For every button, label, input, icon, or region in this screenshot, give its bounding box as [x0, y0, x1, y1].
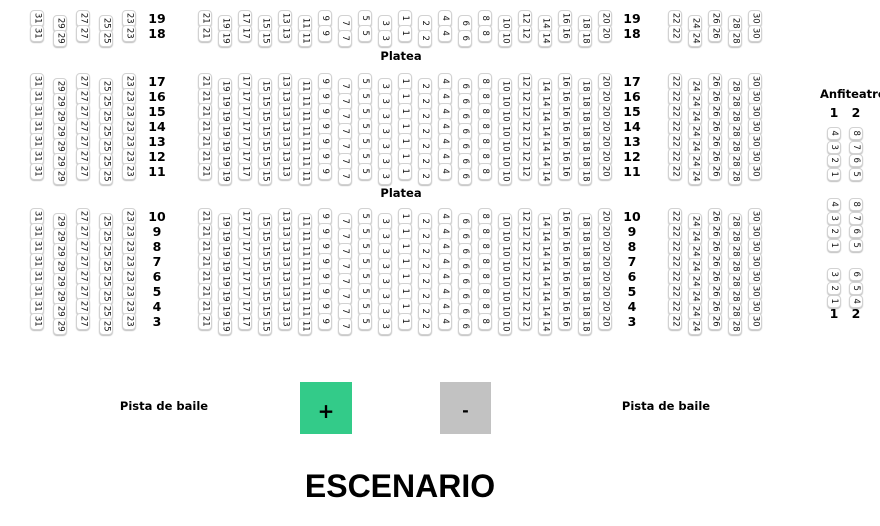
- seat[interactable]: 10: [498, 318, 512, 335]
- seat-number: 14: [541, 141, 550, 152]
- seat[interactable]: 2: [418, 168, 432, 185]
- seat[interactable]: 31: [30, 25, 44, 42]
- seat-number: 11: [301, 18, 310, 29]
- seat-number: 27: [79, 211, 88, 222]
- seat[interactable]: 25: [99, 318, 113, 335]
- seat[interactable]: 6: [849, 268, 863, 281]
- seat-number: 16: [561, 286, 570, 297]
- seat[interactable]: 11: [298, 168, 312, 185]
- seat-number: 13: [281, 151, 290, 162]
- seat[interactable]: 27: [76, 313, 90, 330]
- seat-number: 30: [751, 136, 760, 147]
- seat-number: 30: [751, 13, 760, 24]
- seat[interactable]: 8: [849, 127, 863, 140]
- seat-number: 21: [201, 316, 210, 327]
- seat[interactable]: 6: [849, 225, 863, 238]
- seat-number: 6: [461, 249, 470, 254]
- seat-number: 27: [79, 241, 88, 252]
- seat[interactable]: 12: [518, 25, 532, 42]
- seat[interactable]: 1: [398, 25, 412, 42]
- seat-number: 19: [221, 126, 230, 137]
- seat[interactable]: 10: [498, 168, 512, 185]
- seat-number: 20: [601, 28, 610, 39]
- seat-number: 8: [481, 274, 490, 279]
- seat[interactable]: 31: [30, 163, 44, 180]
- seat-number: 18: [581, 321, 590, 332]
- seat-number: 27: [79, 286, 88, 297]
- seat-number: 14: [541, 276, 550, 287]
- seat-number: 6: [461, 279, 470, 284]
- seat[interactable]: 3: [378, 168, 392, 185]
- seat[interactable]: 6: [849, 154, 863, 167]
- seat-number: 28: [731, 111, 740, 122]
- seat[interactable]: 22: [668, 25, 682, 42]
- seat[interactable]: 21: [198, 25, 212, 42]
- seat[interactable]: 2: [827, 282, 841, 295]
- seat[interactable]: 4: [827, 198, 841, 211]
- seat-number: 6: [852, 272, 861, 277]
- seat-number: 27: [79, 136, 88, 147]
- seat-number: 14: [541, 81, 550, 92]
- seat-number: 11: [301, 126, 310, 137]
- seat-number: 8: [481, 109, 490, 114]
- seat-number: 2: [421, 36, 430, 41]
- seat[interactable]: 7: [338, 168, 352, 185]
- seat-number: 12: [521, 211, 530, 222]
- seat[interactable]: 21: [198, 313, 212, 330]
- seat-number: 23: [125, 286, 134, 297]
- seat[interactable]: 16: [558, 25, 572, 42]
- seat[interactable]: 7: [338, 30, 352, 47]
- seat-number: 20: [601, 301, 610, 312]
- seat-number: 19: [221, 33, 230, 44]
- seat[interactable]: 27: [76, 25, 90, 42]
- seat[interactable]: 5: [849, 239, 863, 252]
- zoom-in-button[interactable]: +: [300, 382, 352, 434]
- seat-number: 22: [671, 166, 680, 177]
- seat[interactable]: 12: [518, 313, 532, 330]
- seat-number: 21: [201, 166, 210, 177]
- seat[interactable]: 4: [438, 25, 452, 42]
- seat-number: 8: [852, 131, 861, 136]
- seat-number: 7: [341, 309, 350, 314]
- seat-number: 10: [501, 33, 510, 44]
- seat-number: 7: [341, 114, 350, 119]
- seat-number: 23: [125, 13, 134, 24]
- seat-number: 12: [521, 91, 530, 102]
- seat[interactable]: 16: [558, 313, 572, 330]
- seat[interactable]: 10: [498, 30, 512, 47]
- seat-number: 19: [221, 96, 230, 107]
- seat-number: 4: [830, 202, 839, 207]
- seat-number: 25: [102, 33, 111, 44]
- seat-number: 18: [581, 156, 590, 167]
- seat[interactable]: 27: [76, 163, 90, 180]
- seat[interactable]: 19: [218, 30, 232, 47]
- seat[interactable]: 3: [827, 141, 841, 154]
- seat-number: 23: [125, 91, 134, 102]
- seat[interactable]: 28: [728, 30, 742, 47]
- seat-number: 6: [852, 158, 861, 163]
- seat[interactable]: 7: [849, 212, 863, 225]
- seat[interactable]: 2: [827, 225, 841, 238]
- seat-number: 6: [852, 229, 861, 234]
- seat[interactable]: 9: [318, 25, 332, 42]
- seat[interactable]: 13: [278, 163, 292, 180]
- seat-number: 10: [501, 276, 510, 287]
- seat-number: 14: [541, 111, 550, 122]
- seat-number: 18: [581, 216, 590, 227]
- seat-number: 20: [601, 13, 610, 24]
- seat[interactable]: 9: [318, 163, 332, 180]
- seat-number: 19: [221, 291, 230, 302]
- seat-number: 13: [281, 121, 290, 132]
- seat-number: 12: [521, 13, 530, 24]
- seat-number: 1: [401, 94, 410, 99]
- seat[interactable]: 30: [748, 163, 762, 180]
- seat-number: 26: [711, 256, 720, 267]
- seat[interactable]: 2: [827, 154, 841, 167]
- seat[interactable]: 1: [398, 313, 412, 330]
- seat-number: 25: [102, 216, 111, 227]
- seat[interactable]: 24: [688, 318, 702, 335]
- seat-number: 2: [421, 249, 430, 254]
- seat[interactable]: 17: [238, 163, 252, 180]
- seat[interactable]: 29: [53, 318, 67, 335]
- seat-number: 29: [56, 321, 65, 332]
- seat-number: 19: [221, 81, 230, 92]
- seat-number: 10: [501, 81, 510, 92]
- seat-number: 31: [33, 301, 42, 312]
- seat-number: 11: [301, 156, 310, 167]
- seat-number: 2: [421, 234, 430, 239]
- seat-number: 12: [521, 166, 530, 177]
- seat[interactable]: 5: [358, 25, 372, 42]
- seat[interactable]: 9: [318, 313, 332, 330]
- seat-number: 15: [261, 126, 270, 137]
- seat-number: 28: [731, 321, 740, 332]
- seat[interactable]: 5: [849, 282, 863, 295]
- seat-number: 8: [481, 304, 490, 309]
- seat-number: 15: [261, 141, 270, 152]
- seat-number: 22: [671, 106, 680, 117]
- seat[interactable]: 6: [458, 168, 472, 185]
- seat-number: 2: [830, 229, 839, 234]
- seat-number: 25: [102, 96, 111, 107]
- seat[interactable]: 1: [827, 239, 841, 252]
- seat-number: 5: [361, 289, 370, 294]
- seat-number: 8: [481, 79, 490, 84]
- seat[interactable]: 13: [278, 313, 292, 330]
- seat[interactable]: 17: [238, 313, 252, 330]
- seat-number: 18: [581, 33, 590, 44]
- seat-number: 7: [341, 99, 350, 104]
- seat-number: 19: [221, 246, 230, 257]
- seat[interactable]: 18: [578, 318, 592, 335]
- seat[interactable]: 31: [30, 313, 44, 330]
- seat[interactable]: 18: [578, 30, 592, 47]
- seat-number: 18: [581, 126, 590, 137]
- seat-number: 22: [671, 28, 680, 39]
- seat[interactable]: 20: [598, 313, 612, 330]
- seat-number: 30: [751, 91, 760, 102]
- seat[interactable]: 20: [598, 163, 612, 180]
- seat-number: 14: [541, 33, 550, 44]
- seat-number: 3: [381, 84, 390, 89]
- seat-number: 1: [401, 229, 410, 234]
- seat-number: 9: [321, 31, 330, 36]
- seat-number: 5: [361, 214, 370, 219]
- seat[interactable]: 12: [518, 163, 532, 180]
- seat-number: 22: [671, 136, 680, 147]
- seat[interactable]: 28: [728, 318, 742, 335]
- seat-number: 24: [691, 306, 700, 317]
- seat[interactable]: 15: [258, 318, 272, 335]
- seat[interactable]: 19: [218, 318, 232, 335]
- seat-number: 21: [201, 136, 210, 147]
- seat-number: 21: [201, 286, 210, 297]
- seat[interactable]: 7: [338, 318, 352, 335]
- seat-number: 28: [731, 171, 740, 182]
- seat[interactable]: 28: [728, 168, 742, 185]
- seat-number: 1: [830, 299, 839, 304]
- seat-number: 12: [521, 76, 530, 87]
- seat[interactable]: 15: [258, 30, 272, 47]
- seat-number: 26: [711, 271, 720, 282]
- seat-number: 25: [102, 126, 111, 137]
- seat-number: 25: [102, 321, 111, 332]
- seat-number: 25: [102, 81, 111, 92]
- seat[interactable]: 14: [538, 318, 552, 335]
- seat-number: 20: [601, 106, 610, 117]
- seat-number: 17: [241, 211, 250, 222]
- seat-number: 15: [261, 246, 270, 257]
- seat[interactable]: 24: [688, 30, 702, 47]
- seat[interactable]: 4: [438, 313, 452, 330]
- seat[interactable]: 8: [478, 163, 492, 180]
- seat-number: 31: [33, 136, 42, 147]
- seat[interactable]: 8: [478, 313, 492, 330]
- seat-number: 5: [361, 31, 370, 36]
- seat[interactable]: 26: [708, 163, 722, 180]
- seat-number: 22: [671, 76, 680, 87]
- seat-number: 4: [441, 259, 450, 264]
- seat-number: 8: [481, 214, 490, 219]
- seat[interactable]: 3: [827, 212, 841, 225]
- seat[interactable]: 3: [378, 30, 392, 47]
- seat[interactable]: 1: [398, 163, 412, 180]
- seat-number: 25: [102, 261, 111, 272]
- seat-number: 26: [711, 28, 720, 39]
- seat-number: 1: [401, 124, 410, 129]
- seat-number: 20: [601, 121, 610, 132]
- anfiteatro-column-header: 1: [827, 105, 841, 120]
- seat-number: 11: [301, 171, 310, 182]
- seat-number: 10: [501, 18, 510, 29]
- seat[interactable]: 7: [849, 141, 863, 154]
- seat-number: 22: [671, 151, 680, 162]
- seat-number: 31: [33, 76, 42, 87]
- seat-number: 10: [501, 156, 510, 167]
- seat-number: 9: [321, 274, 330, 279]
- seat-number: 24: [691, 156, 700, 167]
- seat-number: 19: [221, 156, 230, 167]
- seat[interactable]: 1: [827, 168, 841, 181]
- seat[interactable]: 22: [668, 163, 682, 180]
- seat[interactable]: 2: [418, 318, 432, 335]
- seat-number: 16: [561, 136, 570, 147]
- seat-number: 25: [102, 171, 111, 182]
- seat-number: 15: [261, 81, 270, 92]
- seat-number: 29: [56, 276, 65, 287]
- seat-number: 30: [751, 106, 760, 117]
- seat[interactable]: 29: [53, 168, 67, 185]
- seat-number: 18: [581, 111, 590, 122]
- seat-number: 28: [731, 126, 740, 137]
- seat-number: 23: [125, 76, 134, 87]
- seat-number: 6: [461, 21, 470, 26]
- seat-number: 1: [401, 214, 410, 219]
- seat[interactable]: 6: [458, 30, 472, 47]
- zoom-out-button[interactable]: -: [440, 382, 491, 434]
- seat-number: 7: [341, 234, 350, 239]
- seat[interactable]: 5: [849, 168, 863, 181]
- seat-number: 9: [321, 259, 330, 264]
- seat[interactable]: 8: [478, 25, 492, 42]
- seat[interactable]: 5: [358, 163, 372, 180]
- seat[interactable]: 13: [278, 25, 292, 42]
- seat-number: 23: [125, 211, 134, 222]
- seat-number: 14: [541, 306, 550, 317]
- seat[interactable]: 30: [748, 25, 762, 42]
- seat-number: 13: [281, 91, 290, 102]
- seat[interactable]: 11: [298, 318, 312, 335]
- seat-number: 3: [381, 159, 390, 164]
- seat-number: 7: [852, 215, 861, 220]
- seat-number: 16: [561, 241, 570, 252]
- seat-number: 13: [281, 286, 290, 297]
- seat-number: 28: [731, 291, 740, 302]
- seat[interactable]: 19: [218, 168, 232, 185]
- seat[interactable]: 24: [688, 168, 702, 185]
- seat[interactable]: 26: [708, 25, 722, 42]
- platea-label: Platea: [380, 186, 421, 200]
- seat-number: 10: [501, 231, 510, 242]
- seat-number: 6: [461, 36, 470, 41]
- seat-number: 18: [581, 231, 590, 242]
- seat-number: 31: [33, 316, 42, 327]
- seat-number: 9: [321, 214, 330, 219]
- stage-label: ESCENARIO: [305, 468, 495, 505]
- seat[interactable]: 11: [298, 30, 312, 47]
- seat-number: 21: [201, 226, 210, 237]
- seat[interactable]: 5: [358, 313, 372, 330]
- seat-number: 30: [751, 28, 760, 39]
- seat[interactable]: 23: [122, 25, 136, 42]
- seat-number: 4: [441, 214, 450, 219]
- seat-number: 27: [79, 226, 88, 237]
- seat[interactable]: 8: [849, 198, 863, 211]
- seat-number: 18: [581, 261, 590, 272]
- seat-number: 14: [541, 231, 550, 242]
- seat-number: 26: [711, 121, 720, 132]
- seat[interactable]: 16: [558, 163, 572, 180]
- seat-number: 13: [281, 256, 290, 267]
- seat[interactable]: 14: [538, 30, 552, 47]
- seat-number: 31: [33, 211, 42, 222]
- seat-number: 24: [691, 246, 700, 257]
- seat-number: 31: [33, 286, 42, 297]
- seat-number: 21: [201, 241, 210, 252]
- seat-number: 21: [201, 211, 210, 222]
- seat-number: 24: [691, 231, 700, 242]
- seat[interactable]: 3: [378, 318, 392, 335]
- seat-number: 5: [361, 229, 370, 234]
- seat-number: 1: [401, 31, 410, 36]
- seat-number: 6: [461, 99, 470, 104]
- seat-number: 23: [125, 226, 134, 237]
- seat-number: 3: [381, 174, 390, 179]
- seat[interactable]: 22: [668, 313, 682, 330]
- seat-number: 18: [581, 246, 590, 257]
- seat-number: 1: [830, 171, 839, 176]
- seat[interactable]: 14: [538, 168, 552, 185]
- seat-number: 6: [461, 129, 470, 134]
- seat[interactable]: 26: [708, 313, 722, 330]
- seat-number: 16: [561, 166, 570, 177]
- seat-number: 30: [751, 121, 760, 132]
- seat[interactable]: 15: [258, 168, 272, 185]
- seat[interactable]: 6: [458, 318, 472, 335]
- seat-number: 3: [830, 272, 839, 277]
- seat[interactable]: 21: [198, 163, 212, 180]
- seat[interactable]: 4: [438, 163, 452, 180]
- seat-number: 5: [361, 79, 370, 84]
- seat-number: 24: [691, 18, 700, 29]
- seat[interactable]: 30: [748, 313, 762, 330]
- seat[interactable]: 4: [827, 127, 841, 140]
- seat-number: 15: [261, 321, 270, 332]
- seat-number: 7: [852, 144, 861, 149]
- seat[interactable]: 17: [238, 25, 252, 42]
- seat-number: 4: [441, 79, 450, 84]
- seat-number: 18: [581, 306, 590, 317]
- seat-number: 23: [125, 301, 134, 312]
- seat-number: 23: [125, 271, 134, 282]
- seat[interactable]: 2: [418, 30, 432, 47]
- seat[interactable]: 3: [827, 268, 841, 281]
- seat-number: 2: [830, 158, 839, 163]
- seat-number: 13: [281, 271, 290, 282]
- seat-number: 20: [601, 316, 610, 327]
- seat-number: 2: [421, 129, 430, 134]
- seat-number: 5: [361, 259, 370, 264]
- seat[interactable]: 25: [99, 30, 113, 47]
- seat[interactable]: 23: [122, 163, 136, 180]
- seat-number: 24: [691, 126, 700, 137]
- seat-number: 16: [561, 106, 570, 117]
- seat-number: 17: [241, 271, 250, 282]
- seat[interactable]: 23: [122, 313, 136, 330]
- seat[interactable]: 20: [598, 25, 612, 42]
- seat[interactable]: 25: [99, 168, 113, 185]
- seat-number: 17: [241, 286, 250, 297]
- seat-number: 2: [421, 21, 430, 26]
- seat[interactable]: 18: [578, 168, 592, 185]
- seat-number: 12: [521, 301, 530, 312]
- seat-number: 20: [601, 76, 610, 87]
- seat[interactable]: 29: [53, 30, 67, 47]
